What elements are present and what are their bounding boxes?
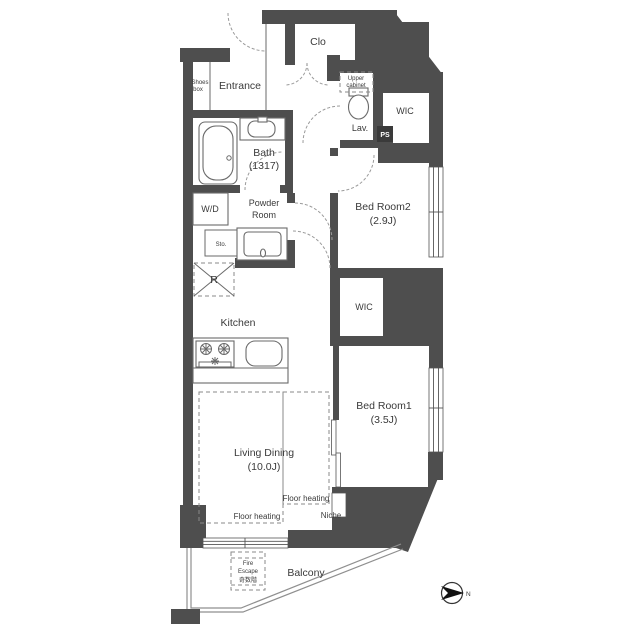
bedroom2-window: [429, 167, 443, 257]
label-shoes-box-2: box: [193, 87, 203, 93]
sink-icon: [246, 341, 282, 366]
label-bath-size: (1317): [249, 160, 279, 172]
sliding-door: [332, 420, 341, 487]
label-upper-cabinet-2: cabinet: [346, 83, 366, 89]
label-bath-name: Bath: [253, 147, 275, 159]
compass-north-label: N: [466, 591, 471, 598]
label-wic-lower: WIC: [355, 302, 373, 312]
label-bedroom1-size: (3.5J): [371, 414, 398, 426]
bedroom1-window: [429, 368, 443, 452]
toilet-icon: [349, 88, 369, 119]
label-powder-1: Powder: [249, 198, 280, 208]
label-washer-dryer: W/D: [201, 204, 219, 214]
label-lavatory: Lav.: [352, 123, 368, 133]
stove-icon: [196, 341, 234, 367]
ps-shaft: PS: [377, 126, 393, 142]
label-balcony: Balcony: [287, 567, 325, 579]
label-floor-heating-right: Floor heating: [283, 494, 330, 503]
bedroom2-door-arc: [338, 155, 374, 191]
washstand-icon: [237, 228, 287, 260]
label-upper-cabinet-1: Upper: [348, 76, 364, 82]
living-balcony-window: [203, 538, 288, 548]
label-powder-2: Room: [252, 210, 276, 220]
label-storage: Sto.: [216, 242, 227, 248]
closet-door-arc-left: [285, 63, 307, 85]
powder-door-arc: [295, 203, 332, 240]
label-niche: Niche: [321, 511, 342, 520]
label-fire-escape-1: Fire: [243, 561, 254, 567]
balcony: [171, 544, 403, 624]
lav-door-arc: [303, 106, 340, 143]
floor-plan-page: PS: [0, 0, 640, 640]
bathtub-icon: [199, 122, 237, 184]
label-bedroom2-name: Bed Room2: [355, 201, 411, 213]
bath-sink-icon: [240, 117, 285, 140]
label-wic-upper: WIC: [396, 106, 414, 116]
floor-plan-drawing: PS: [0, 0, 640, 640]
label-living-dining-size: (10.0J): [248, 461, 281, 473]
compass-icon: N: [441, 583, 471, 604]
label-floor-heating-left: Floor heating: [234, 512, 281, 521]
label-refrigerator: R: [210, 274, 218, 286]
kitchen-counter: [193, 338, 288, 383]
kitchen-door-arc: [293, 231, 330, 268]
label-shoes-box-1: Shoes: [191, 80, 208, 86]
front-door-arc: [228, 13, 266, 51]
ps-label: PS: [380, 132, 390, 139]
label-fire-escape-2: Escape: [238, 569, 259, 575]
balcony-wall-block: [171, 609, 200, 624]
divider-lines: [210, 24, 266, 110]
label-kitchen: Kitchen: [220, 317, 255, 329]
label-entrance: Entrance: [219, 80, 261, 92]
closet-door-arc-right: [307, 63, 329, 85]
label-bedroom1-name: Bed Room1: [356, 400, 412, 412]
label-bedroom2-size: (2.9J): [370, 215, 397, 227]
label-living-dining-name: Living Dining: [234, 447, 294, 459]
label-fire-escape-3: 奇数階: [239, 576, 257, 584]
label-closet: Clo: [310, 36, 326, 48]
balcony-railing-outer: [187, 548, 403, 612]
